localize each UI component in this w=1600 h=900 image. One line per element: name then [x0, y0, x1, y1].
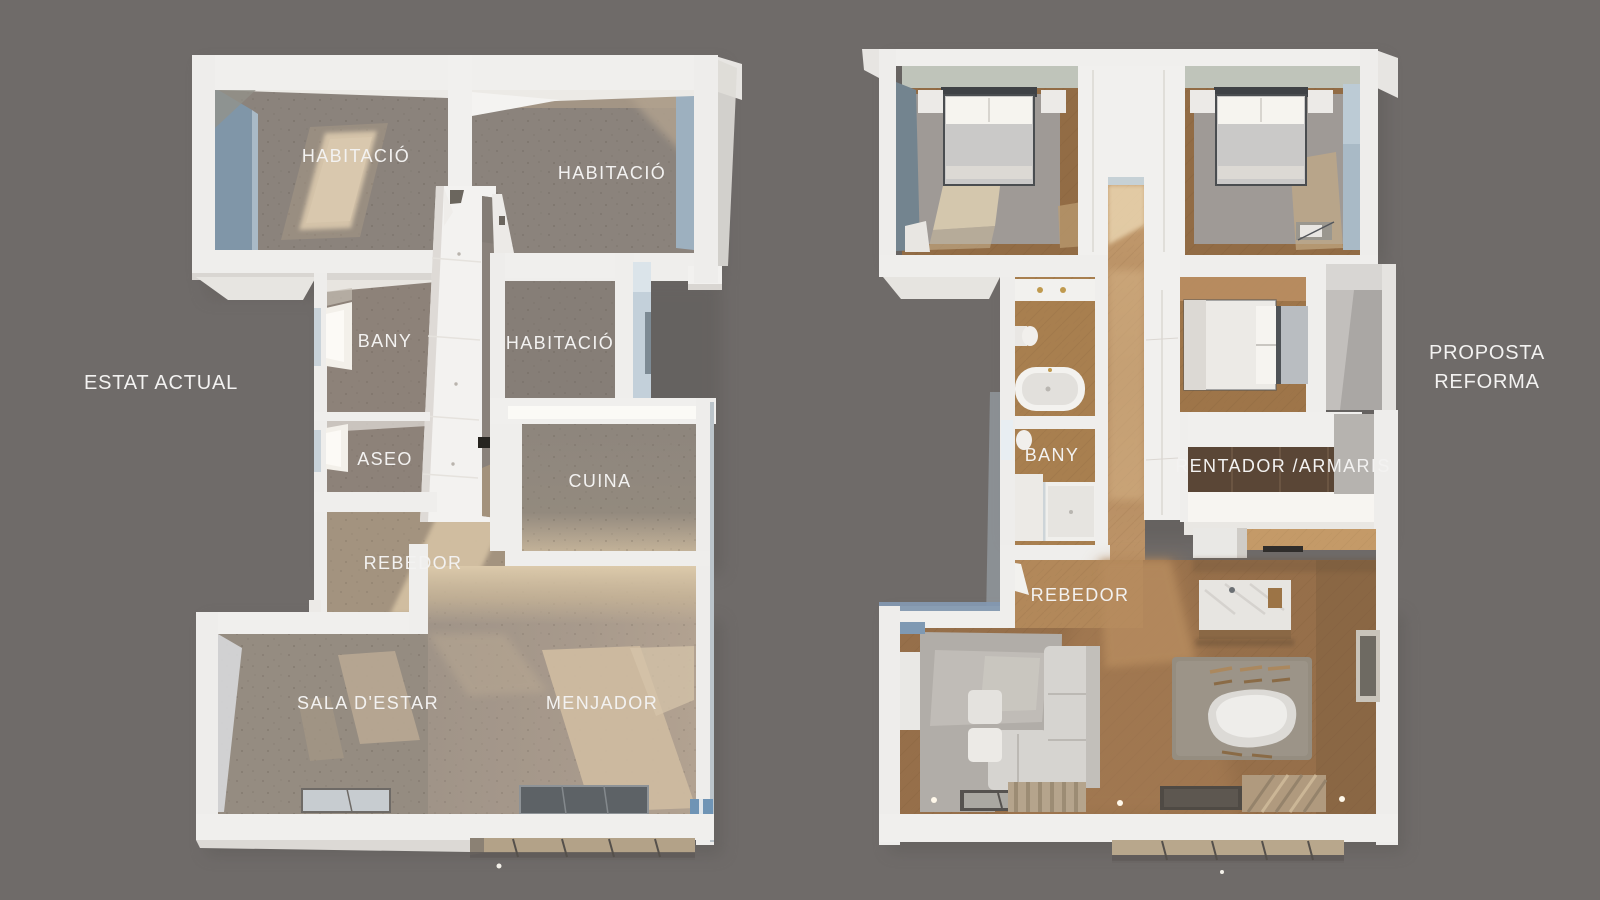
svg-text:REBEDOR: REBEDOR	[1031, 585, 1130, 605]
svg-text:REBEDOR: REBEDOR	[364, 553, 463, 573]
svg-text:PROPOSTA: PROPOSTA	[1429, 342, 1545, 364]
svg-text:HABITACIÓ: HABITACIÓ	[506, 332, 614, 353]
svg-text:BANY: BANY	[358, 331, 413, 351]
svg-text:ESTAT ACTUAL: ESTAT ACTUAL	[84, 372, 238, 394]
svg-text:BANY: BANY	[1025, 445, 1080, 465]
svg-text:HABITACIÓ: HABITACIÓ	[302, 145, 410, 166]
svg-text:MENJADOR: MENJADOR	[546, 693, 658, 713]
svg-text:RENTADOR /ARMARIS: RENTADOR /ARMARIS	[1175, 456, 1390, 476]
svg-text:CUINA: CUINA	[568, 471, 631, 491]
svg-text:SALA D'ESTAR: SALA D'ESTAR	[297, 693, 439, 713]
svg-text:REFORMA: REFORMA	[1434, 371, 1540, 393]
svg-text:ASEO: ASEO	[357, 449, 413, 469]
svg-text:HABITACIÓ: HABITACIÓ	[558, 162, 666, 183]
